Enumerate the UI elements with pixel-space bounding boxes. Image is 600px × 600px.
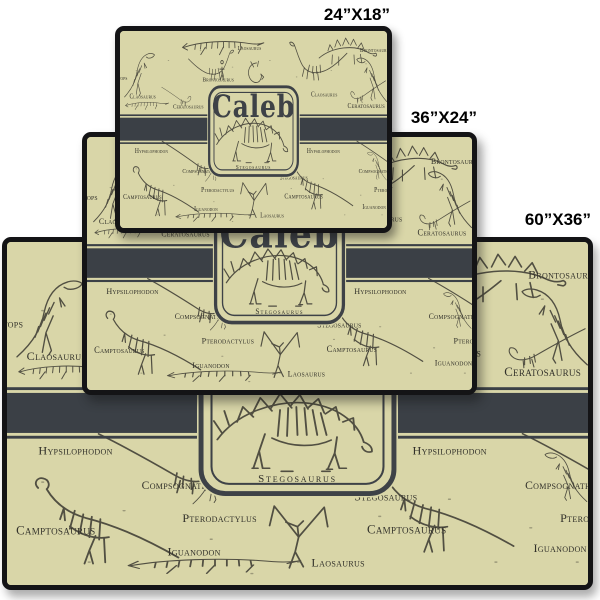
pattern-label: Triceratops [7, 319, 23, 331]
pattern-label: Ceratosaurus [504, 365, 581, 379]
pattern-label: Compsognathus [525, 480, 588, 492]
pattern-label: Hypsilophodon [413, 444, 487, 458]
badge-caption: Stegosaurus [258, 473, 337, 485]
pattern-label: Iguanodon [362, 203, 386, 211]
pattern-label: Camptosaurus [16, 524, 95, 538]
pattern-label: Hypsilophodon [38, 444, 112, 458]
pattern-label: Hypsilophodon [135, 148, 168, 156]
rug-artwork: Laosaurus Brontosaurus Claosaurus Claosa… [120, 31, 387, 228]
pattern-label: Iguanodon [533, 541, 586, 555]
pattern-label: Hypsilophodon [106, 286, 159, 296]
pattern-label: Claosaurus [27, 349, 86, 363]
pattern-label: Pterodactylus [202, 335, 254, 345]
pattern-label: Compsognathus [359, 168, 387, 175]
pattern-label: Hypsilophodon [354, 286, 407, 296]
rug-preview-24x18[interactable]: Laosaurus Brontosaurus Claosaurus Claosa… [115, 26, 392, 233]
pattern-label: Brontosaurus [203, 77, 234, 84]
pattern-label: Pterodactylus [182, 511, 257, 525]
pattern-label: Pterodactylus [454, 335, 472, 345]
pattern-label: Iguanodon [192, 360, 230, 370]
pattern-label: Iguanodon [435, 357, 472, 367]
pattern-label: Triceratops [120, 76, 127, 83]
pattern-label: Compsognathus [429, 312, 472, 321]
badge-caption: Stegosaurus [236, 165, 271, 172]
pattern-label: Hypsilophodon [307, 148, 340, 156]
size-label-24x18: 24”X18” [324, 5, 390, 25]
pattern-label: Brontosaurus [360, 48, 387, 55]
product-preview-stage: 24”X18” 36”X24” 60”X36” [0, 0, 600, 600]
pattern-label: Camptosaurus [327, 344, 377, 354]
pattern-label: Laosaurus [311, 556, 365, 570]
pattern-label: Ceratosaurus [418, 227, 467, 237]
size-label-36x24: 36”X24” [411, 108, 477, 128]
pattern-label: Pterodactylus [201, 186, 234, 194]
pattern-label: Brontosaurus [431, 157, 472, 166]
pattern-label: Claosaurus [129, 93, 155, 101]
pattern-label: Iguanodon [167, 544, 220, 558]
size-label-60x36: 60”X36” [525, 210, 591, 230]
name-badge: Caleb Stegosaurus [207, 85, 299, 178]
pattern-label: Claosaurus [311, 91, 337, 99]
pattern-label: Laosaurus [288, 368, 326, 378]
pattern-label: Ceratosaurus [173, 104, 204, 111]
pattern-label: Camptosaurus [94, 345, 144, 355]
pattern-label: Pterodactylus [374, 186, 387, 194]
pattern-label: Pterodactylus [560, 511, 588, 525]
pattern-label: Iguanodon [194, 205, 218, 213]
pattern-label: Camptosaurus [123, 194, 162, 202]
pattern-label: Camptosaurus [284, 193, 323, 201]
pattern-label: Ceratosaurus [347, 102, 384, 110]
pattern-label: Triceratops [87, 193, 98, 202]
pattern-label: Laosaurus [238, 46, 262, 53]
pattern-label: Brontosaurus [528, 270, 588, 282]
badge-caption: Stegosaurus [255, 307, 303, 316]
personalized-name: Caleb [212, 88, 295, 124]
pattern-label: Camptosaurus [367, 523, 446, 537]
pattern-label: Laosaurus [260, 212, 284, 220]
